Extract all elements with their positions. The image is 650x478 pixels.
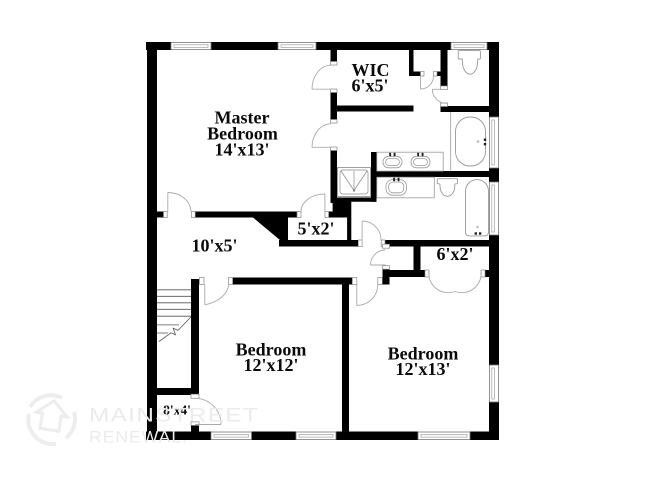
svg-text:12'x12': 12'x12' <box>243 355 298 375</box>
svg-text:MAINSTREET: MAINSTREET <box>89 405 259 427</box>
svg-text:5'x2': 5'x2' <box>297 219 334 239</box>
svg-text:6'x2': 6'x2' <box>436 244 473 264</box>
svg-text:RENEWAL.: RENEWAL. <box>89 428 188 447</box>
svg-text:10'x5': 10'x5' <box>191 236 237 256</box>
svg-text:12'x13': 12'x13' <box>395 359 450 379</box>
svg-text:6'x5': 6'x5' <box>351 76 388 96</box>
svg-text:14'x13': 14'x13' <box>214 140 269 160</box>
